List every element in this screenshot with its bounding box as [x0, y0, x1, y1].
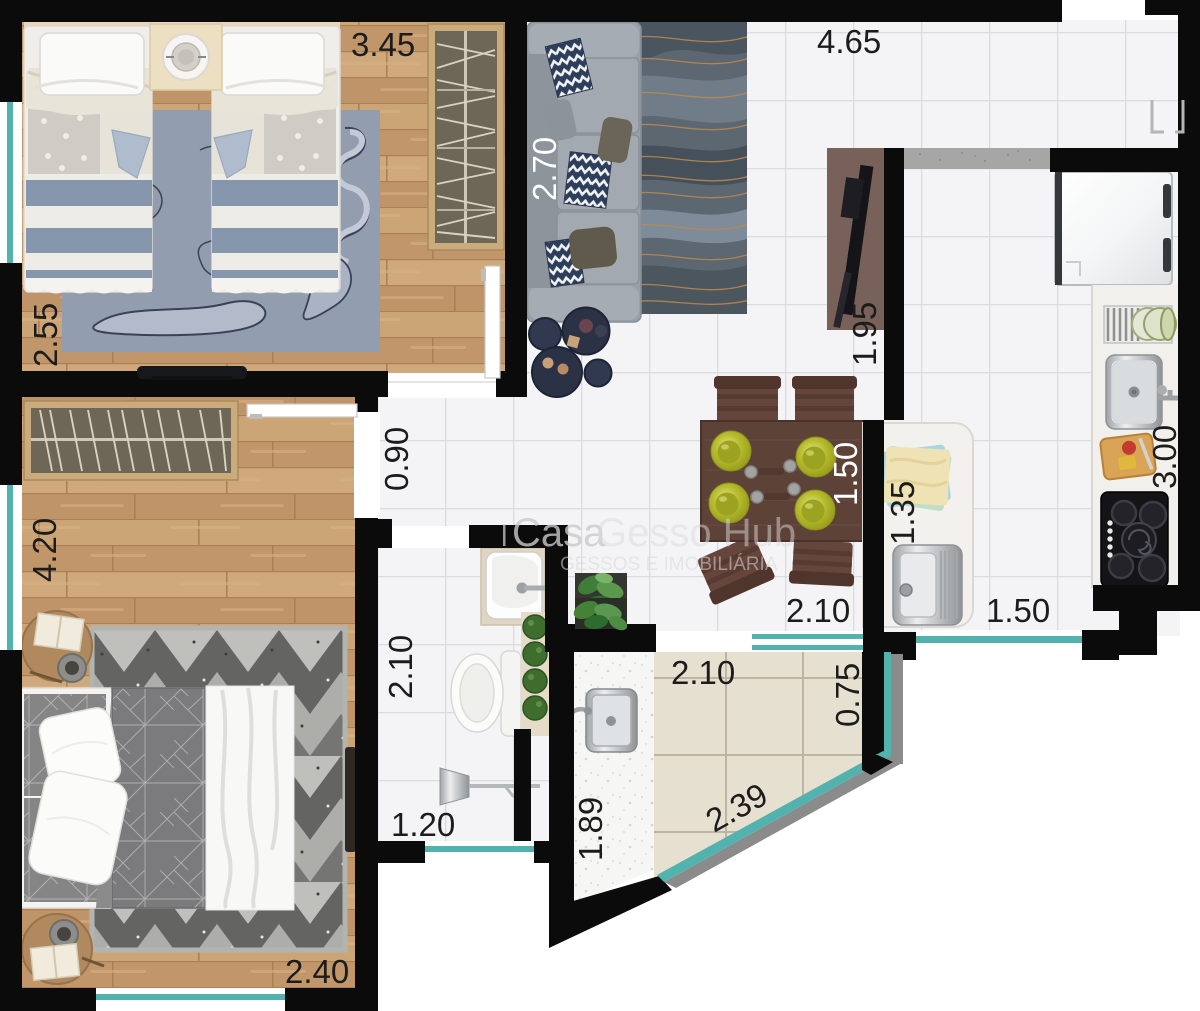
svg-text:0.90: 0.90 [378, 427, 415, 491]
svg-text:3.45: 3.45 [351, 26, 415, 63]
svg-text:Gesso Hub: Gesso Hub [596, 511, 796, 555]
svg-text:1.50: 1.50 [827, 442, 864, 506]
svg-text:4.20: 4.20 [26, 518, 63, 582]
svg-text:1.35: 1.35 [884, 481, 921, 545]
svg-text:GESSOS E IMOBILIÁRIA: GESSOS E IMOBILIÁRIA [560, 554, 778, 575]
svg-text:1.20: 1.20 [391, 806, 455, 843]
svg-text:0.75: 0.75 [829, 663, 866, 727]
svg-text:2.40: 2.40 [285, 953, 349, 990]
svg-text:1.89: 1.89 [572, 797, 609, 861]
svg-text:Casa: Casa [512, 511, 606, 555]
svg-text:2.10: 2.10 [671, 654, 735, 691]
svg-text:2.10: 2.10 [786, 592, 850, 629]
svg-text:1.95: 1.95 [846, 302, 883, 366]
svg-text:4.65: 4.65 [817, 23, 881, 60]
svg-text:3.00: 3.00 [1146, 425, 1183, 489]
svg-text:2.55: 2.55 [27, 303, 64, 367]
svg-text:2.70: 2.70 [526, 137, 563, 201]
svg-text:1.50: 1.50 [986, 592, 1050, 629]
svg-text:2.10: 2.10 [382, 635, 419, 699]
